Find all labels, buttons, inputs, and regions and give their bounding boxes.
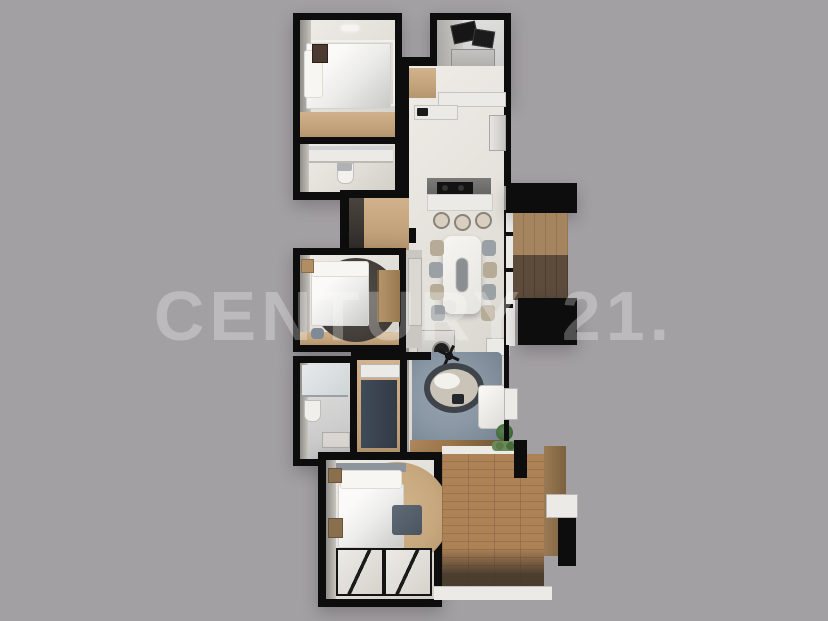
- pillows-middle-bed: [311, 261, 369, 277]
- dining-chair-r1: [482, 240, 496, 256]
- dining-chair-r3: [482, 284, 496, 300]
- bar-stool-2: [454, 214, 471, 231]
- real-estate-floorplan-image: { "watermark": { "text": "CENTURY 21.", …: [0, 0, 828, 621]
- bar-stool-1: [433, 212, 450, 229]
- round-lounge-chair: [424, 363, 484, 413]
- dining-chair-l4: [431, 305, 445, 321]
- shower: [302, 365, 348, 397]
- kitchen-left-wall: [402, 66, 409, 200]
- corridor2-right-wall: [400, 352, 407, 458]
- table-centerpiece: [456, 258, 468, 292]
- deck-planter-box: [546, 494, 578, 518]
- glass-panel-1: [336, 548, 384, 596]
- window-tick-3: [504, 304, 513, 308]
- wall-art-icon: [312, 44, 328, 63]
- bathroom-vanity: [309, 150, 393, 163]
- toilet-lid: [337, 163, 352, 171]
- coffee-table-icon: [452, 394, 464, 404]
- balcony-floor-dark: [513, 255, 568, 300]
- dining-chair-r2: [483, 262, 497, 278]
- glass-panel-2: [384, 548, 432, 596]
- bar-stool-3: [475, 212, 492, 229]
- deck-right-post: [558, 518, 576, 566]
- lounge-chair-throw: [434, 373, 460, 389]
- dining-chair-l2: [429, 262, 443, 278]
- nightstand-master-2: [328, 518, 343, 538]
- balcony-floor-light: [513, 213, 568, 255]
- window-tick-2: [504, 268, 513, 272]
- deck-shadow: [442, 548, 544, 586]
- corridor-left-wall: [340, 190, 349, 256]
- navy-wardrobe: [361, 380, 397, 448]
- kitchen-sink-icon: [417, 108, 428, 116]
- balcony-top-wall: [506, 183, 577, 213]
- island-front: [427, 194, 493, 211]
- dining-chair-l3: [430, 284, 444, 300]
- entry-wood-floor: [409, 68, 436, 98]
- corridor-wardrobe: [349, 198, 364, 250]
- floorplan-canvas: CENTURY 21.: [0, 0, 828, 621]
- wardrobe-middle: [377, 270, 400, 322]
- master-bench: [392, 505, 422, 535]
- pillows-master-bed: [340, 470, 402, 489]
- open-cabinet-door2-icon: [472, 28, 495, 48]
- window-tick-1: [504, 232, 513, 236]
- burner-dot-1: [442, 185, 448, 191]
- dining-chair-r4: [481, 305, 495, 321]
- ceiling-light-icon: [341, 25, 359, 31]
- chaise-sofa: [478, 385, 506, 429]
- corridor-top-wall: [340, 190, 404, 198]
- pouf-icon: [311, 328, 324, 339]
- bed-middle: [311, 272, 369, 326]
- balcony-bottom-wall: [518, 298, 577, 345]
- vanity-lower: [322, 432, 350, 448]
- corridor2-shelf: [360, 364, 400, 378]
- deck-bottom-sill: [434, 586, 552, 600]
- burner-dot-2: [458, 185, 464, 191]
- dining-chair-l1: [430, 240, 444, 256]
- wall-column: [504, 388, 518, 420]
- bathroom-top-left-wall: [300, 144, 309, 192]
- nightstand-middle: [301, 259, 314, 273]
- sliding-door: [408, 258, 422, 326]
- toilet-lower-icon: [304, 400, 321, 422]
- bedroom-top-wood-strip: [300, 112, 395, 137]
- fridge-icon: [489, 115, 506, 151]
- corridor-wood-floor: [364, 198, 409, 250]
- corridor2-top-wall: [351, 352, 431, 360]
- deck-wall-post: [514, 440, 527, 478]
- nightstand-master-1: [328, 468, 342, 483]
